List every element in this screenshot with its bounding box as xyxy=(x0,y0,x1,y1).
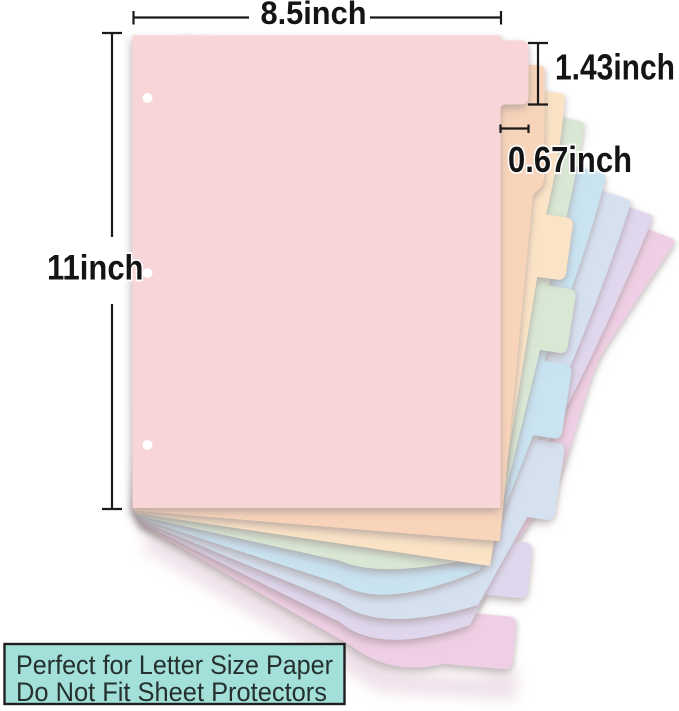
svg-text:11inch: 11inch xyxy=(47,249,144,288)
svg-text:8.5inch: 8.5inch xyxy=(261,0,367,31)
svg-text:1.43inch: 1.43inch xyxy=(555,47,675,88)
svg-text:Do Not Fit Sheet Protectors: Do Not Fit Sheet Protectors xyxy=(16,677,327,707)
svg-text:Perfect for Letter Size Paper: Perfect for Letter Size Paper xyxy=(16,650,333,680)
svg-text:0.67inch: 0.67inch xyxy=(508,139,632,180)
